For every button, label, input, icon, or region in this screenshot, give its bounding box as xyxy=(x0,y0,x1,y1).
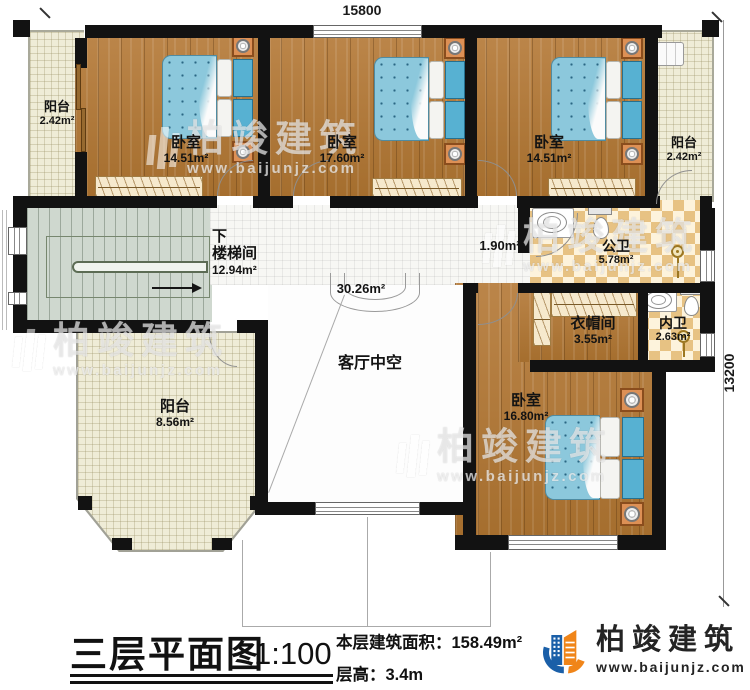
wall xyxy=(517,196,660,208)
watermark-logo-icon xyxy=(12,329,46,371)
toilet-tank xyxy=(588,207,612,215)
exterior-sill-line xyxy=(6,210,7,330)
nightstand xyxy=(621,37,643,59)
wall xyxy=(75,152,87,196)
wall xyxy=(253,196,293,208)
dimension-tick xyxy=(718,595,729,606)
pillow xyxy=(429,101,444,139)
headboard-cushion xyxy=(233,59,253,97)
bed-sheet-fold xyxy=(199,57,216,137)
room-label-stairwell: 下 楼梯间 12.94m² xyxy=(212,228,257,277)
wall xyxy=(700,196,712,208)
plan-scale: 1:100 xyxy=(254,636,332,672)
wall xyxy=(422,25,662,38)
exterior-sill-line xyxy=(2,210,3,330)
pillow xyxy=(217,99,232,137)
wardrobe xyxy=(533,291,551,346)
pillow xyxy=(429,61,444,99)
headboard-cushion xyxy=(233,99,253,137)
wardrobe xyxy=(95,176,203,197)
brand-logo: 柏竣建筑 www.baijunjz.com xyxy=(538,622,746,678)
pillow xyxy=(606,61,621,99)
dimension-line xyxy=(723,20,724,607)
window xyxy=(313,25,422,38)
toilet-icon xyxy=(593,217,609,239)
nightstand xyxy=(621,143,643,165)
window xyxy=(8,292,27,305)
dimension-height: 13200 xyxy=(721,343,737,403)
wall xyxy=(530,283,712,293)
wall xyxy=(258,38,270,196)
shower-head-icon xyxy=(671,245,684,258)
air-conditioner xyxy=(656,42,684,66)
nightstand xyxy=(232,35,254,57)
wall xyxy=(645,38,658,196)
wall xyxy=(420,502,470,515)
window xyxy=(508,535,618,550)
bed-sheet-fold xyxy=(411,59,428,139)
room-label-bedroom4: 卧室 16.80m² xyxy=(504,392,549,424)
headboard-cushion xyxy=(445,101,465,139)
stair-handrail xyxy=(72,261,208,273)
wall xyxy=(330,196,478,208)
title-underline xyxy=(70,681,333,684)
wall xyxy=(13,196,217,208)
lower-floor-outline xyxy=(242,540,243,626)
sliding-door xyxy=(76,64,81,110)
wall xyxy=(85,25,313,38)
wall xyxy=(237,320,268,333)
wall-corner xyxy=(13,20,30,37)
plan-title: 三层平面图 xyxy=(70,624,265,678)
wall xyxy=(13,208,27,227)
room-label-bedroom3: 卧室 14.51m² xyxy=(527,134,572,166)
wall xyxy=(652,366,666,550)
wall-corner xyxy=(212,538,232,550)
lower-floor-outline xyxy=(490,552,491,626)
room-label-public-bath: 公卫 5.78m² xyxy=(599,238,634,267)
wall-corner xyxy=(78,496,92,510)
area-label-vestibule: 1.90m² xyxy=(479,238,520,253)
wall xyxy=(465,38,477,196)
brand-website: www.baijunjz.com xyxy=(596,659,746,675)
wall-corner xyxy=(702,20,719,37)
wall xyxy=(618,535,665,550)
lower-floor-outline xyxy=(367,517,368,626)
headboard-cushion xyxy=(622,417,644,457)
brand-name: 柏竣建筑 xyxy=(596,625,746,655)
stair-direction-arrow-icon xyxy=(192,283,202,293)
wall xyxy=(455,535,508,550)
sliding-door xyxy=(81,108,86,152)
wall-corner xyxy=(112,538,132,550)
room-label-balcony-top-left: 阳台 2.42m² xyxy=(40,100,75,128)
pillow xyxy=(217,59,232,97)
room-label-balcony-bottom: 阳台 8.56m² xyxy=(156,398,194,430)
headboard-cushion xyxy=(622,459,644,499)
dimension-tick xyxy=(39,7,50,18)
wall xyxy=(463,283,478,293)
room-label-ensuite-bath: 内卫 2.63m² xyxy=(656,315,691,344)
nightstand xyxy=(620,388,644,412)
window xyxy=(700,250,715,282)
floor-plan-canvas: 阳台 2.42m² 卧室 14.51m² 卧室 17.60m² 卧室 14.51… xyxy=(0,0,750,690)
wall xyxy=(13,320,210,333)
wardrobe xyxy=(548,178,636,197)
wall xyxy=(700,208,715,250)
nightstand xyxy=(444,143,466,165)
title-underline xyxy=(70,674,333,677)
window xyxy=(8,227,27,255)
shower-stem xyxy=(683,343,685,357)
floor-living-void xyxy=(268,285,463,504)
wall xyxy=(255,333,268,508)
wardrobe xyxy=(551,291,637,317)
room-label-balcony-top-right: 阳台 2.42m² xyxy=(667,136,702,164)
nightstand xyxy=(620,502,644,526)
room-label-bedroom1: 卧室 14.51m² xyxy=(164,134,209,166)
headboard-cushion xyxy=(622,101,642,139)
floor-area-text: 本层建筑面积：158.49m² xyxy=(336,629,522,653)
bed-sheet-fold xyxy=(588,59,605,139)
stair-direction-line xyxy=(152,287,194,289)
balcony-bottom-railing xyxy=(76,331,266,552)
floor-height-text: 层高：3.4m xyxy=(336,661,423,685)
pillow xyxy=(600,417,620,457)
sink-icon xyxy=(645,291,672,309)
dimension-width: 15800 xyxy=(312,2,412,18)
toilet-icon xyxy=(684,296,699,316)
area-label-hallway: 30.26m² xyxy=(337,281,385,296)
wall xyxy=(463,293,476,535)
room-label-bedroom2: 卧室 17.60m² xyxy=(320,134,365,166)
wardrobe xyxy=(372,178,462,197)
window xyxy=(700,333,715,357)
wall xyxy=(255,502,315,515)
wall xyxy=(518,283,530,293)
room-label-living-void: 客厅中空 xyxy=(338,355,402,373)
nightstand xyxy=(444,37,466,59)
wall xyxy=(13,255,27,292)
wall-corner xyxy=(250,496,264,510)
pillow xyxy=(600,459,620,499)
window xyxy=(315,502,420,515)
headboard-cushion xyxy=(445,61,465,99)
lower-floor-outline xyxy=(242,626,491,627)
wall xyxy=(638,290,648,360)
headboard-cushion xyxy=(622,61,642,99)
pillow xyxy=(606,101,621,139)
brand-logo-icon xyxy=(538,622,588,678)
bed-sheet-fold xyxy=(583,417,600,498)
shower-stem xyxy=(677,258,679,278)
room-label-cloakroom: 衣帽间 3.55m² xyxy=(570,315,615,347)
wall xyxy=(530,360,712,372)
